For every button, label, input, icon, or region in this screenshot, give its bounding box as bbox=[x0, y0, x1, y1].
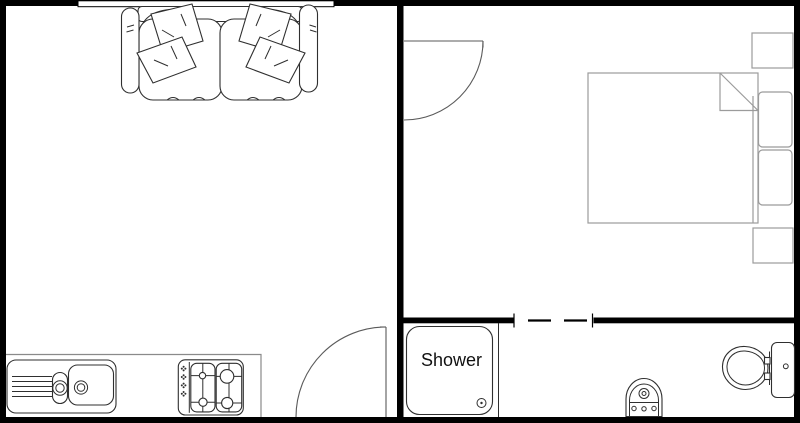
window bbox=[78, 1, 334, 7]
bed-pillow bbox=[759, 92, 793, 147]
bedroom-door-swing-arc bbox=[404, 41, 483, 120]
wall-middle-vertical bbox=[397, 0, 404, 423]
toilet bbox=[722, 343, 794, 398]
floor-plan: Shower bbox=[0, 0, 800, 423]
shower-tray bbox=[407, 327, 493, 415]
wall-bathroom-left bbox=[403, 318, 514, 324]
shower-label: Shower bbox=[421, 350, 482, 370]
entry-door bbox=[296, 327, 386, 417]
sofa-arm-left bbox=[122, 8, 140, 93]
sofa bbox=[122, 4, 318, 100]
bidet bbox=[626, 378, 662, 416]
kitchen-sink bbox=[7, 360, 116, 413]
entry-door-swing-arc bbox=[296, 327, 386, 417]
wall-bathroom-right bbox=[594, 318, 795, 324]
bed-mattress bbox=[588, 73, 758, 223]
toilet-bowl bbox=[722, 346, 768, 389]
shower: Shower bbox=[407, 323, 499, 417]
sink-tap-housing bbox=[53, 373, 68, 404]
bed-pillow bbox=[759, 150, 793, 205]
dashed-doorway bbox=[514, 314, 593, 328]
floor-plan-canvas: Shower bbox=[0, 0, 800, 423]
bedroom-door bbox=[404, 41, 483, 120]
nightstand-bottom bbox=[753, 228, 793, 263]
double-bed bbox=[588, 73, 792, 223]
nightstand-top bbox=[752, 33, 793, 68]
gas-hob bbox=[178, 360, 243, 415]
sofa-arm-right bbox=[300, 5, 318, 92]
toilet-tank bbox=[772, 343, 795, 398]
wall-left bbox=[0, 0, 6, 423]
